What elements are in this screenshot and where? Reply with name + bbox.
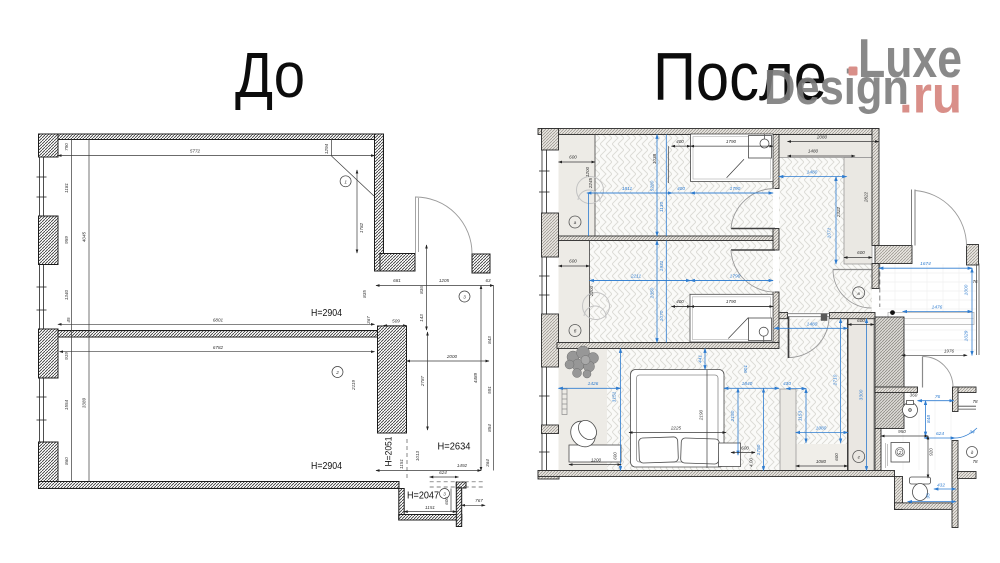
svg-text:1811: 1811	[622, 186, 633, 192]
svg-text:432: 432	[937, 483, 945, 489]
svg-text:1200: 1200	[591, 458, 602, 463]
svg-text:600: 600	[569, 259, 577, 264]
svg-text:76: 76	[935, 394, 941, 400]
svg-text:843: 843	[487, 336, 492, 344]
svg-text:1130: 1130	[659, 202, 665, 213]
svg-text:1200: 1200	[585, 166, 590, 177]
svg-text:2080: 2080	[816, 135, 828, 140]
svg-text:1294: 1294	[324, 143, 329, 154]
svg-text:2350: 2350	[650, 287, 656, 299]
svg-text:790: 790	[64, 143, 69, 151]
svg-text:360: 360	[910, 393, 918, 398]
svg-text:1151: 1151	[425, 505, 435, 510]
svg-text:1080: 1080	[816, 426, 827, 432]
svg-text:919: 919	[64, 352, 69, 360]
svg-text:950: 950	[898, 429, 906, 434]
svg-text:5772: 5772	[190, 149, 201, 154]
svg-text:1013: 1013	[415, 450, 420, 461]
svg-text:600: 600	[857, 250, 865, 255]
svg-text:1029: 1029	[964, 330, 970, 341]
svg-text:2225: 2225	[670, 426, 682, 431]
svg-text:2200: 2200	[589, 285, 594, 297]
svg-text:2245: 2245	[588, 177, 593, 189]
svg-text:1480: 1480	[808, 149, 819, 154]
svg-text:509: 509	[392, 319, 400, 324]
svg-text:367: 367	[366, 316, 371, 324]
svg-text:4489: 4489	[473, 372, 478, 383]
svg-text:До: До	[235, 39, 305, 111]
svg-text:2000: 2000	[446, 354, 458, 359]
svg-text:624: 624	[936, 431, 944, 437]
svg-text:4045: 4045	[82, 231, 87, 242]
svg-text:1071: 1071	[827, 227, 833, 238]
svg-text:1674: 1674	[920, 261, 931, 267]
svg-text:1205: 1205	[439, 278, 450, 283]
svg-text:6782: 6782	[213, 345, 224, 350]
svg-text:1790: 1790	[730, 186, 741, 192]
svg-text:1080: 1080	[816, 459, 827, 464]
svg-text:H=2051: H=2051	[384, 437, 395, 467]
svg-text:H=2904: H=2904	[311, 308, 342, 319]
svg-text:1750: 1750	[756, 444, 762, 455]
svg-text:1840: 1840	[742, 381, 753, 387]
svg-text:441: 441	[698, 355, 704, 363]
svg-text:2: 2	[898, 450, 902, 455]
svg-text:1340: 1340	[64, 289, 69, 300]
svg-text:1070: 1070	[659, 310, 665, 321]
svg-text:1151: 1151	[399, 459, 404, 469]
svg-text:3: 3	[463, 295, 466, 300]
svg-text:63: 63	[485, 278, 491, 283]
svg-text:1931: 1931	[659, 260, 665, 271]
svg-text:3300: 3300	[859, 389, 865, 400]
svg-text:2150: 2150	[730, 410, 736, 422]
svg-text:920: 920	[929, 448, 934, 456]
svg-text:3389: 3389	[82, 397, 87, 408]
svg-text:860: 860	[64, 457, 69, 465]
svg-text:591: 591	[487, 386, 492, 394]
svg-text:2822: 2822	[864, 191, 869, 203]
svg-text:1782: 1782	[359, 222, 364, 233]
svg-text:д: д	[971, 450, 974, 455]
svg-text:364: 364	[485, 459, 490, 467]
svg-text:600: 600	[834, 453, 839, 461]
svg-text:2710: 2710	[833, 374, 839, 386]
svg-text:2190: 2190	[699, 409, 704, 421]
svg-text:1480: 1480	[807, 170, 818, 176]
svg-text:835: 835	[362, 290, 367, 298]
svg-text:400: 400	[676, 299, 684, 304]
svg-text:1976: 1976	[944, 348, 955, 353]
svg-text:1153: 1153	[798, 411, 804, 422]
svg-text:а: а	[574, 220, 577, 225]
svg-text:1038: 1038	[652, 153, 657, 164]
svg-text:1426: 1426	[588, 381, 599, 387]
svg-text:3151: 3151	[612, 391, 618, 402]
svg-text:H=2904: H=2904	[311, 461, 342, 472]
svg-text:624: 624	[439, 470, 447, 475]
svg-text:1181: 1181	[64, 183, 69, 193]
svg-text:1: 1	[344, 179, 347, 184]
svg-text:600: 600	[444, 497, 449, 505]
svg-text:400: 400	[676, 139, 684, 144]
svg-text:1554: 1554	[64, 399, 69, 410]
svg-text:H=2634: H=2634	[438, 442, 471, 453]
svg-text:600: 600	[569, 155, 577, 160]
svg-text:.ru: .ru	[899, 67, 962, 125]
svg-text:95: 95	[926, 493, 932, 499]
svg-text:3: 3	[443, 492, 446, 497]
svg-text:600: 600	[857, 318, 865, 323]
svg-text:2119: 2119	[351, 380, 356, 391]
svg-text:600: 600	[741, 446, 749, 451]
svg-text:Design: Design	[764, 61, 909, 115]
svg-text:1790: 1790	[726, 139, 737, 144]
svg-text:б: б	[574, 329, 577, 334]
svg-text:600: 600	[613, 452, 618, 460]
svg-text:1000: 1000	[964, 284, 970, 295]
svg-text:2211: 2211	[630, 274, 642, 280]
svg-text:76: 76	[972, 279, 978, 284]
svg-text:H=2047: H=2047	[407, 491, 439, 502]
svg-text:854: 854	[487, 424, 492, 432]
svg-text:901: 901	[743, 365, 749, 373]
svg-text:959: 959	[64, 236, 69, 244]
svg-text:2787: 2787	[420, 375, 425, 387]
svg-text:143: 143	[419, 314, 424, 322]
svg-text:4,00: 4,00	[749, 458, 754, 467]
svg-text:836: 836	[419, 286, 424, 294]
svg-text:6801: 6801	[213, 317, 224, 322]
svg-text:1492: 1492	[457, 463, 468, 468]
svg-text:430: 430	[783, 381, 791, 387]
svg-text:848: 848	[926, 415, 932, 423]
svg-text:2: 2	[335, 370, 339, 375]
svg-text:5280: 5280	[650, 180, 656, 191]
svg-text:681: 681	[393, 278, 401, 283]
svg-text:1480: 1480	[807, 321, 818, 327]
svg-text:400: 400	[677, 186, 685, 192]
svg-text:2322: 2322	[836, 206, 841, 218]
svg-text:1476: 1476	[932, 305, 943, 311]
svg-text:78: 78	[972, 399, 978, 404]
svg-text:767: 767	[475, 498, 483, 503]
svg-text:1790: 1790	[726, 299, 737, 304]
svg-text:1790: 1790	[730, 274, 741, 280]
svg-text:45: 45	[66, 317, 71, 323]
svg-text:78: 78	[972, 459, 978, 464]
